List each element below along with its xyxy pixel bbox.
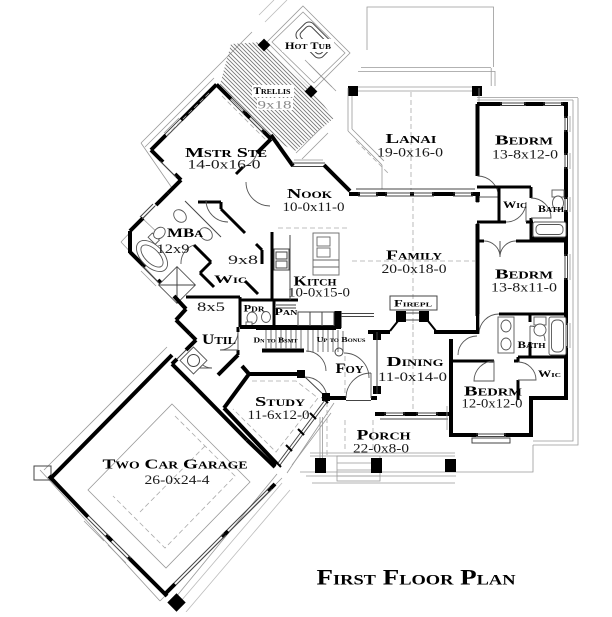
svg-text:20-0x18-0: 20-0x18-0	[382, 262, 447, 276]
svg-text:Family: Family	[386, 248, 443, 263]
svg-text:Study: Study	[255, 394, 306, 409]
svg-text:Bedrm: Bedrm	[495, 134, 554, 149]
svg-text:Dining: Dining	[387, 354, 444, 369]
svg-text:Util: Util	[202, 332, 236, 348]
svg-text:12-0x12-0: 12-0x12-0	[462, 397, 523, 411]
svg-text:Nook: Nook	[287, 186, 332, 201]
svg-text:12x9: 12x9	[157, 242, 190, 256]
svg-text:19-0x16-0: 19-0x16-0	[377, 146, 443, 160]
svg-text:13-8x12-0: 13-8x12-0	[492, 148, 558, 162]
svg-text:9x18: 9x18	[258, 98, 292, 112]
svg-text:11-6x12-0: 11-6x12-0	[248, 408, 310, 422]
svg-text:Pan: Pan	[275, 308, 298, 318]
svg-text:Up to Bonus: Up to Bonus	[317, 335, 366, 344]
svg-text:First Floor Plan: First Floor Plan	[317, 564, 516, 589]
svg-text:10-0x15-0: 10-0x15-0	[288, 286, 350, 300]
svg-text:MBa: MBa	[167, 226, 204, 240]
svg-text:Wic: Wic	[503, 201, 527, 211]
svg-text:14-0x16-0: 14-0x16-0	[188, 158, 261, 172]
svg-text:Pdr: Pdr	[244, 305, 266, 315]
svg-text:Trellis: Trellis	[254, 87, 291, 97]
svg-text:Foy: Foy	[336, 361, 364, 377]
svg-text:22-0x8-0: 22-0x8-0	[353, 442, 409, 456]
svg-text:10-0x11-0: 10-0x11-0	[283, 200, 345, 214]
svg-text:26-0x24-4: 26-0x24-4	[145, 473, 211, 487]
svg-text:11-0x14-0: 11-0x14-0	[378, 370, 447, 384]
svg-text:Bath: Bath	[518, 341, 547, 351]
svg-text:9x8: 9x8	[228, 253, 258, 267]
svg-text:Dn to Bsmt: Dn to Bsmt	[254, 336, 299, 345]
svg-text:Firepl: Firepl	[394, 299, 432, 309]
svg-text:Bath: Bath	[538, 205, 565, 215]
svg-text:8x5: 8x5	[197, 300, 225, 314]
svg-text:Hot Tub: Hot Tub	[285, 42, 331, 52]
svg-text:Wic: Wic	[538, 369, 561, 379]
svg-text:Wic: Wic	[214, 272, 247, 286]
svg-text:13-8x11-0: 13-8x11-0	[491, 281, 557, 295]
svg-text:Two Car Garage: Two Car Garage	[103, 458, 248, 473]
